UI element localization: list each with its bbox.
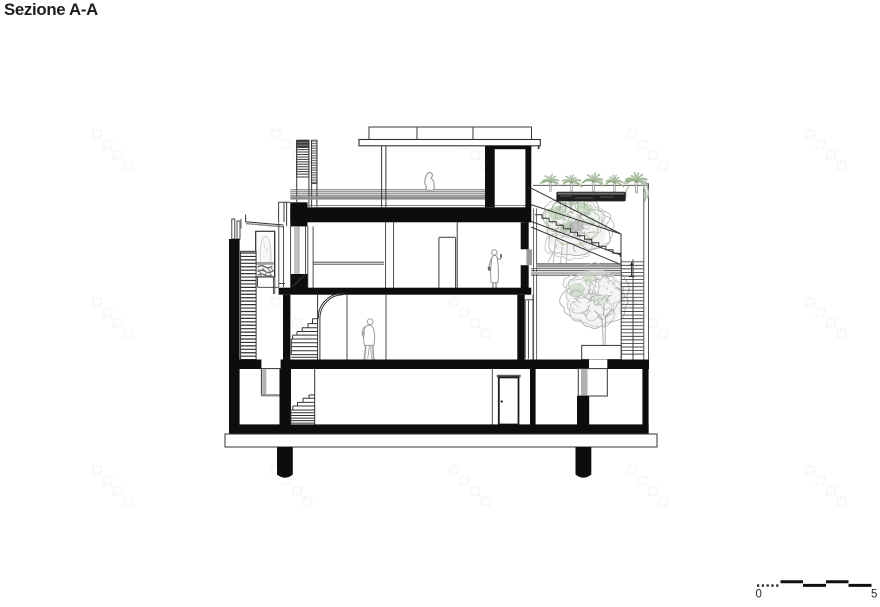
svg-text:Sezione A-A: Sezione A-A — [4, 0, 98, 19]
svg-text:0: 0 — [756, 589, 762, 601]
svg-text:5: 5 — [871, 589, 877, 601]
